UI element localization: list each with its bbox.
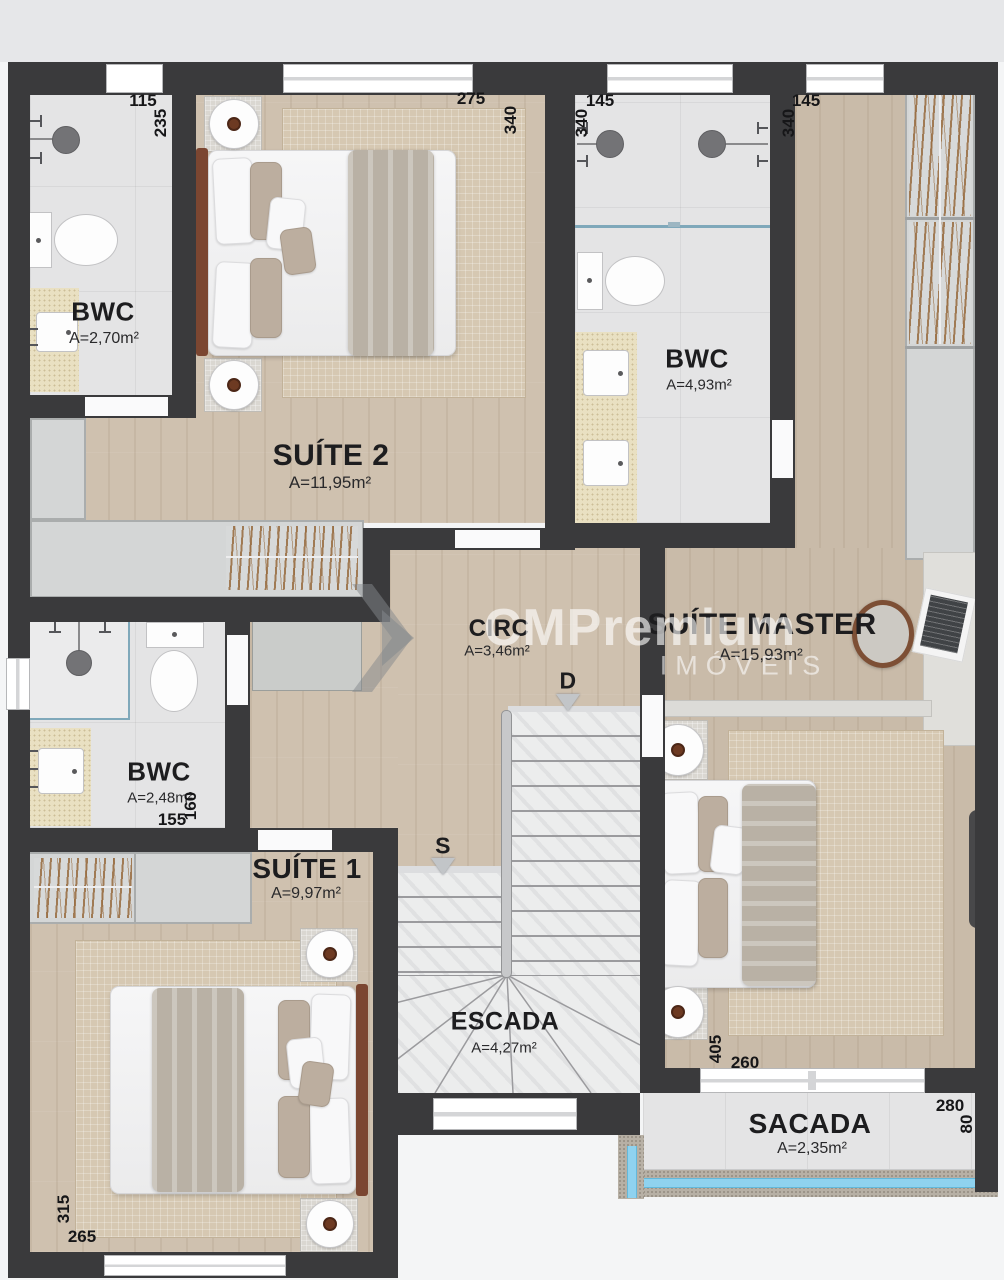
faucet-icon	[49, 631, 61, 633]
wall	[545, 62, 575, 550]
toilet-button	[36, 238, 41, 243]
wall	[373, 852, 398, 1278]
dim-suite1-height: 315	[54, 1195, 74, 1223]
shower-head-icon	[596, 130, 624, 158]
stair-down-arrow-icon	[556, 694, 580, 711]
toilet-button	[172, 632, 177, 637]
toilet-bowl	[54, 214, 118, 266]
room-area: A=3,46m²	[464, 643, 529, 660]
toilet-bowl	[605, 256, 665, 306]
sink-drain	[72, 769, 77, 774]
room-label: BWC	[127, 757, 191, 788]
door-opening-suite2	[455, 530, 540, 548]
faucet-icon	[40, 115, 42, 127]
door-opening-bwc-suite1	[227, 635, 248, 705]
dim-bwc-master-height: 340	[572, 109, 592, 137]
dim-suite1-width: 265	[68, 1227, 96, 1247]
dim-sacada-height: 80	[957, 1115, 977, 1134]
room-label: SUÍTE 2	[273, 439, 390, 473]
wall	[172, 85, 196, 418]
master-blanket	[742, 784, 816, 986]
faucet-icon	[586, 155, 588, 167]
room-area: A=9,97m²	[271, 885, 341, 903]
sacada-glass-railing	[628, 1178, 988, 1188]
dim-bwc-suite1-height: 160	[181, 792, 201, 820]
wardrobe-divider	[134, 854, 136, 922]
room-label: SUÍTE MASTER	[647, 608, 876, 642]
room-area: A=4,27m²	[471, 1040, 536, 1057]
window	[106, 64, 163, 93]
suite2-closet-hanging-clothes	[226, 526, 358, 590]
dim-suite2-width: 275	[457, 89, 485, 109]
dim-suite-master-height: 340	[779, 109, 799, 137]
window	[6, 658, 30, 710]
window	[806, 64, 884, 93]
window	[283, 64, 473, 93]
faucet-icon	[757, 155, 759, 167]
room-label: CIRC	[469, 615, 530, 643]
shower-head-icon	[698, 130, 726, 158]
room-label: BWC	[71, 297, 135, 328]
dim-master-bed-width: 260	[731, 1053, 759, 1073]
room-area: A=15,93m²	[719, 645, 803, 665]
door-opening-bwc-suite2	[85, 397, 168, 416]
room-area: A=2,35m²	[777, 1140, 847, 1158]
faucet-icon	[40, 152, 42, 164]
stair-down-label: D	[559, 668, 576, 695]
suite2-pillow-small	[279, 226, 317, 276]
suite1-wardrobe-hanging-clothes	[34, 858, 132, 918]
wall	[925, 1068, 975, 1093]
room-area: A=4,93m²	[666, 377, 731, 394]
suite1-lamp-bottom-core	[323, 1217, 337, 1231]
sliding-door-stile	[808, 1071, 816, 1090]
suite2-lamp-top-core	[227, 117, 241, 131]
wall	[640, 1068, 700, 1093]
door-opening-suite-master	[642, 695, 663, 757]
dim-bwc-suite2-height: 235	[151, 109, 171, 137]
sink-drain	[618, 461, 623, 466]
stair-up-label: S	[435, 833, 451, 860]
faucet-icon	[757, 122, 759, 134]
wall	[8, 828, 398, 852]
suite2-lamp-bottom-core	[227, 378, 241, 392]
suite2-closet-rod	[226, 556, 358, 558]
suite2-closet-column	[30, 418, 86, 520]
suite2-bed-headboard	[196, 148, 208, 356]
shower-arm	[78, 622, 80, 652]
outside-area-top	[0, 0, 1004, 62]
floor-plan: BWC A=2,70m² 115 235 SUÍTE 2 A=11,95m² 2…	[0, 0, 1004, 1280]
door-opening-suite1	[258, 830, 332, 850]
faucet-icon	[758, 127, 768, 129]
suite1-lamp-top-core	[323, 947, 337, 961]
wall	[8, 597, 390, 622]
shower-head-icon	[66, 650, 92, 676]
suite1-blanket	[152, 988, 244, 1192]
master-pillow	[660, 879, 702, 967]
sink-drain	[618, 371, 623, 376]
wardrobe-rod	[939, 94, 941, 344]
toilet-button	[587, 278, 592, 283]
sacada-glass-railing-left	[627, 1146, 637, 1198]
suite1-pillow	[309, 1097, 352, 1184]
master-lamp-bottom-core	[671, 1005, 685, 1019]
shower-arm	[726, 143, 768, 145]
toilet-bowl	[150, 650, 198, 712]
wall	[975, 62, 998, 1192]
suite2-blanket	[348, 150, 434, 356]
suite1-pillow-small	[297, 1060, 335, 1108]
dim-master-bed-height: 405	[706, 1035, 726, 1063]
suite2-pillow-accent	[250, 258, 282, 338]
dim-sacada-width: 280	[936, 1096, 964, 1116]
faucet-icon	[30, 120, 40, 122]
shower-arm	[30, 138, 54, 140]
door-opening-bwc-master	[772, 420, 793, 478]
wardrobe-divider	[905, 346, 975, 349]
wardrobe-rod	[34, 886, 132, 888]
master-shelf	[650, 700, 932, 717]
stair-up-arrow-icon	[431, 858, 455, 875]
room-label: SACADA	[749, 1108, 872, 1140]
room-label: BWC	[665, 344, 729, 375]
window	[433, 1098, 577, 1130]
shower-head-icon	[52, 126, 80, 154]
wall	[575, 523, 795, 548]
master-pillow	[660, 791, 702, 875]
shower-glass-handle	[668, 222, 680, 227]
room-area: A=2,70m²	[69, 330, 139, 348]
stair-flight-down	[511, 712, 640, 975]
window	[104, 1255, 286, 1276]
suite1-bed-headboard	[356, 984, 368, 1196]
suite1-pillow-accent	[278, 1096, 310, 1178]
room-label: ESCADA	[451, 1008, 560, 1037]
faucet-icon	[30, 157, 40, 159]
faucet-icon	[758, 160, 768, 162]
master-lamp-top-core	[671, 743, 685, 757]
dim-suite2-height: 340	[501, 106, 521, 134]
stair-center-rail	[501, 710, 512, 978]
master-pillow-accent	[698, 878, 728, 958]
window	[607, 64, 733, 93]
faucet-icon	[99, 631, 111, 633]
sink	[38, 748, 84, 794]
room-label: SUÍTE 1	[252, 853, 361, 885]
room-area: A=11,95m²	[289, 473, 371, 493]
open-door-panel	[252, 613, 362, 691]
stair-flight-up	[395, 873, 503, 975]
